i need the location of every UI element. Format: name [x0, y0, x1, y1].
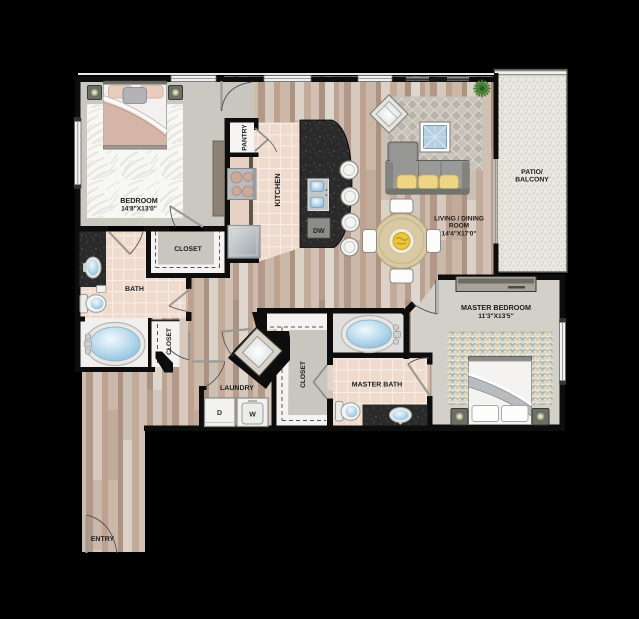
svg-text:CLOSET: CLOSET	[166, 328, 173, 355]
svg-text:CLOSET: CLOSET	[300, 361, 307, 388]
svg-text:LAUNDRY: LAUNDRY	[220, 385, 254, 392]
svg-text:LIVING / DINING: LIVING / DINING	[434, 216, 484, 223]
svg-text:BATH: BATH	[125, 286, 144, 293]
svg-text:ENTRY: ENTRY	[91, 536, 115, 543]
svg-text:CLOSET: CLOSET	[174, 246, 202, 253]
svg-text:MASTER BATH: MASTER BATH	[352, 382, 402, 389]
svg-text:PATIO/: PATIO/	[521, 169, 543, 176]
svg-text:11'3"X13'5": 11'3"X13'5"	[478, 313, 513, 320]
svg-text:14'8"X13'0": 14'8"X13'0"	[121, 206, 157, 213]
svg-text:KITCHEN: KITCHEN	[273, 173, 282, 206]
svg-text:D: D	[217, 410, 222, 417]
svg-text:DW: DW	[313, 228, 325, 235]
svg-text:ROOM: ROOM	[449, 223, 469, 230]
svg-text:PANTRY: PANTRY	[242, 124, 249, 151]
svg-text:W: W	[249, 412, 256, 419]
svg-text:BALCONY: BALCONY	[515, 177, 549, 184]
svg-text:BEDROOM: BEDROOM	[120, 196, 158, 205]
svg-text:MASTER BEDROOM: MASTER BEDROOM	[461, 303, 531, 312]
svg-text:14'4"X17'0": 14'4"X17'0"	[442, 231, 477, 238]
